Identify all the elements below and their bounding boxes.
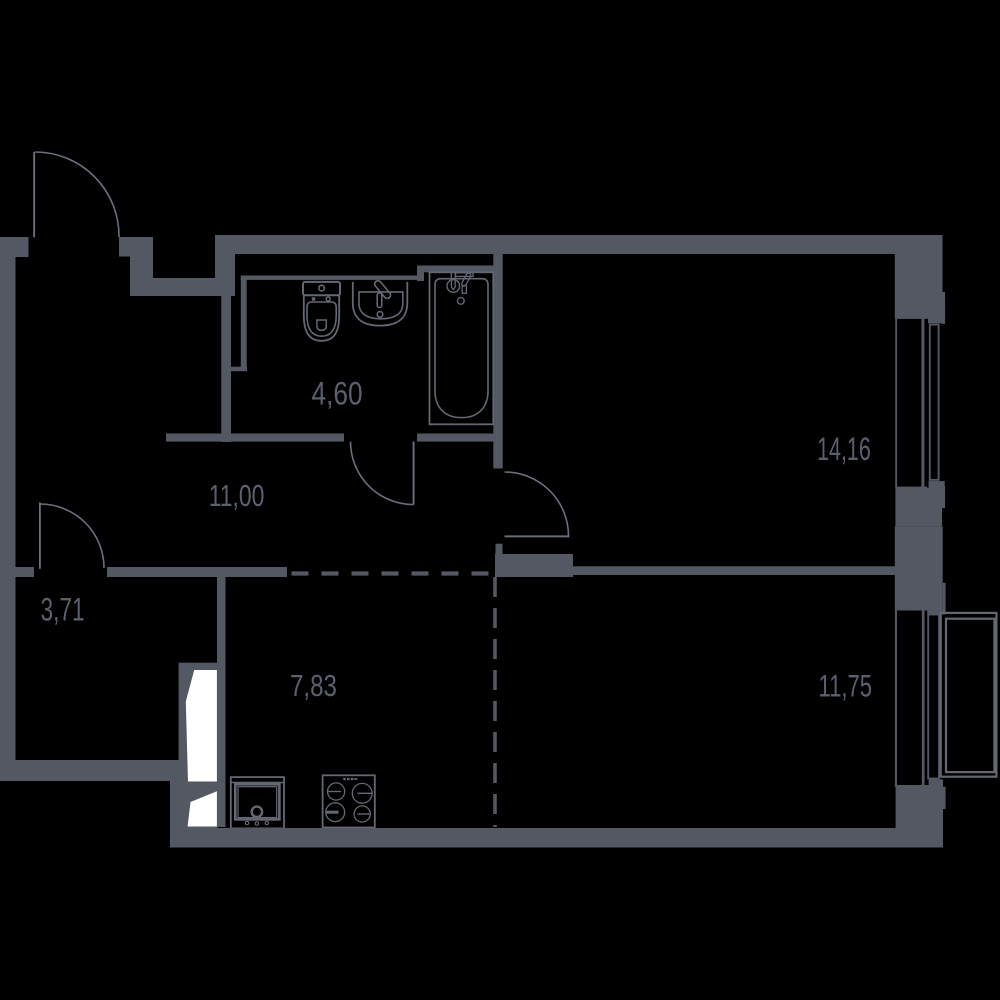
svg-text:4,60: 4,60 <box>312 377 363 412</box>
svg-text:14,16: 14,16 <box>817 431 871 467</box>
svg-text:3,71: 3,71 <box>41 592 85 628</box>
svg-text:11,75: 11,75 <box>819 668 872 704</box>
svg-text:11,00: 11,00 <box>209 479 265 513</box>
svg-text:7,83: 7,83 <box>290 668 337 702</box>
